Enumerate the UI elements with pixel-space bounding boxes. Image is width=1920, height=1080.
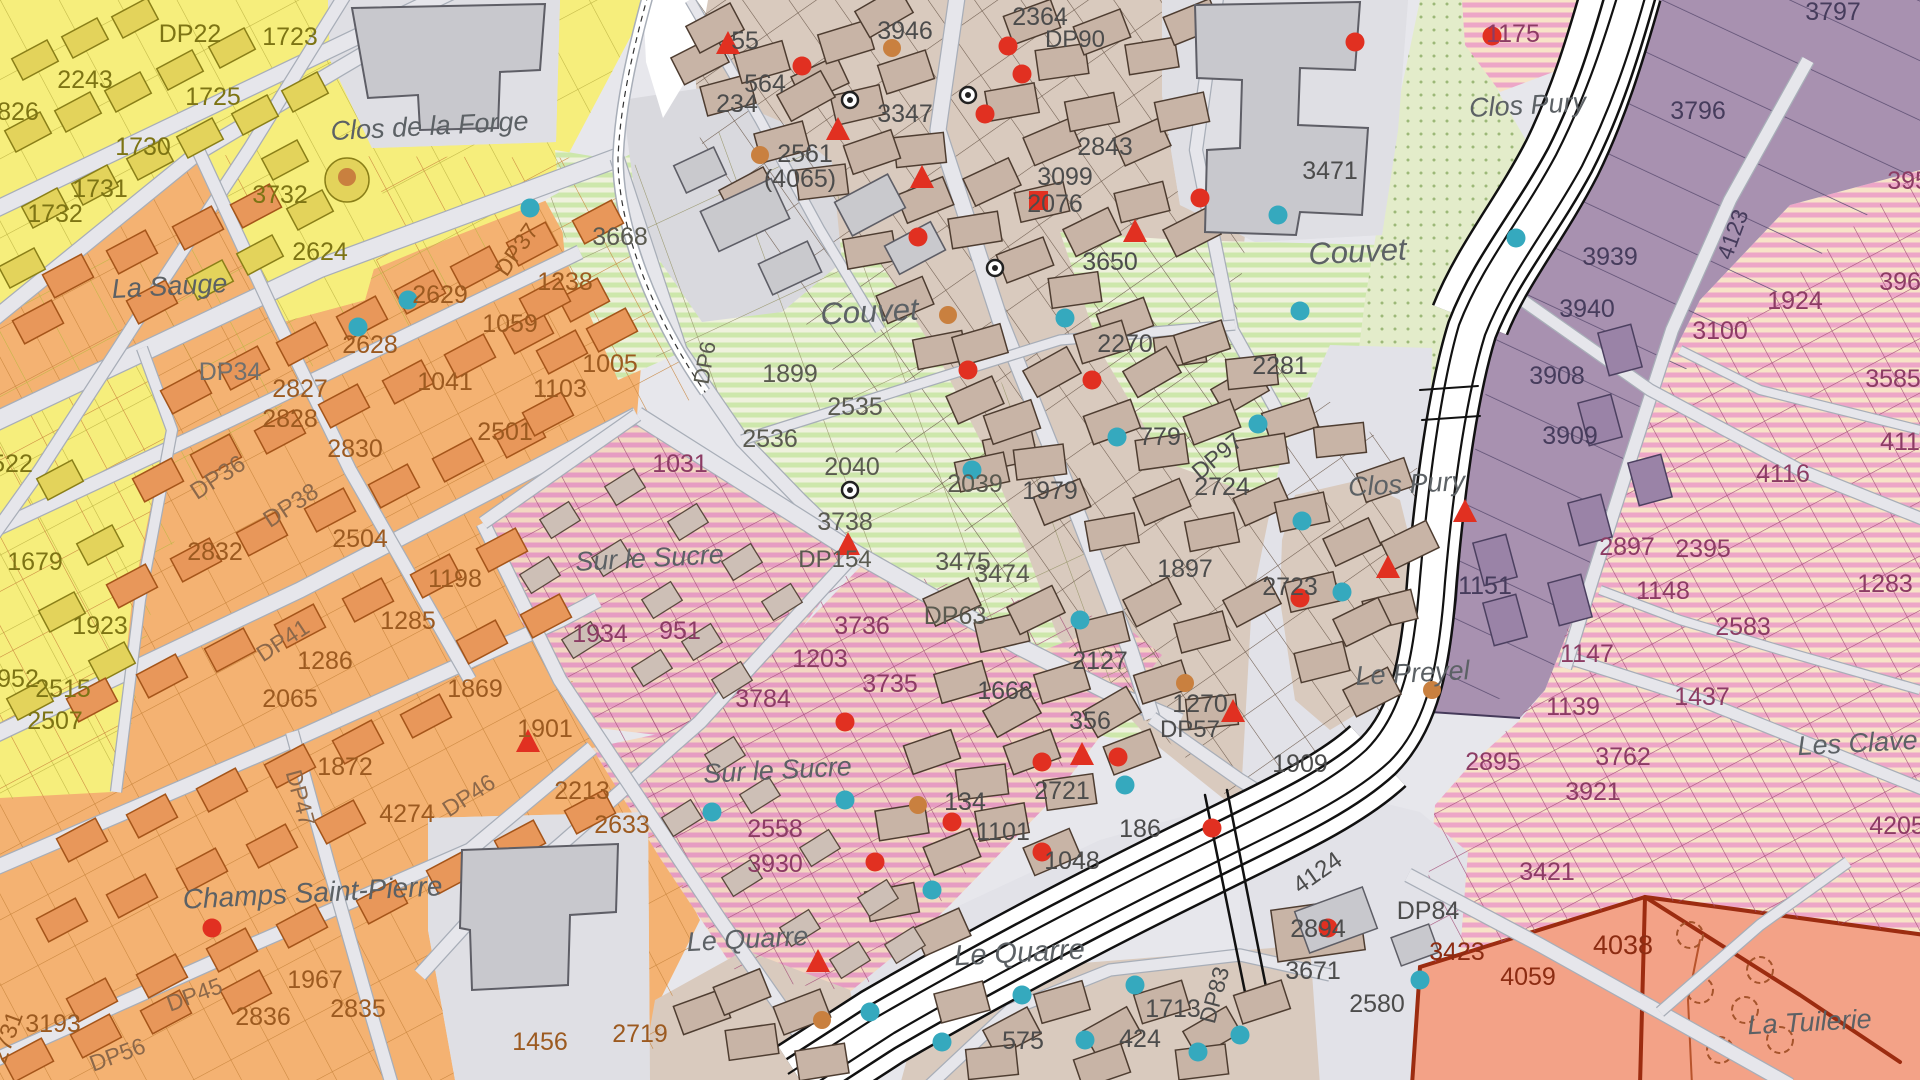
svg-text:1285: 1285: [380, 607, 436, 635]
svg-text:4116: 4116: [1756, 460, 1810, 488]
svg-text:1041: 1041: [417, 368, 473, 396]
svg-text:1151: 1151: [1458, 572, 1512, 600]
svg-text:3796: 3796: [1670, 97, 1726, 125]
svg-text:3099: 3099: [1037, 163, 1093, 191]
svg-text:1005: 1005: [582, 350, 638, 378]
svg-text:1203: 1203: [792, 645, 848, 673]
svg-text:2515: 2515: [35, 675, 91, 703]
svg-text:2535: 2535: [827, 393, 883, 421]
svg-text:575: 575: [1002, 1027, 1044, 1055]
svg-text:2629: 2629: [412, 281, 468, 309]
svg-text:134: 134: [944, 788, 986, 816]
svg-text:3784: 3784: [735, 685, 791, 713]
svg-text:2395: 2395: [1675, 535, 1731, 563]
svg-text:2127: 2127: [1072, 647, 1128, 675]
svg-text:2628: 2628: [342, 331, 398, 359]
svg-text:4274: 4274: [379, 800, 435, 828]
svg-text:DP22: DP22: [159, 20, 222, 48]
svg-text:2724: 2724: [1194, 473, 1250, 501]
svg-text:2830: 2830: [327, 435, 383, 463]
svg-text:951: 951: [659, 617, 701, 645]
svg-text:2832: 2832: [187, 538, 243, 566]
svg-text:2504: 2504: [332, 525, 388, 553]
svg-text:2827: 2827: [272, 375, 328, 403]
svg-text:234: 234: [716, 90, 758, 118]
svg-text:1909: 1909: [1272, 750, 1328, 778]
svg-text:1101: 1101: [976, 818, 1030, 846]
svg-text:826: 826: [0, 98, 39, 126]
svg-text:1723: 1723: [262, 23, 318, 51]
svg-text:1139: 1139: [1546, 693, 1600, 721]
svg-text:1732: 1732: [27, 200, 83, 228]
svg-text:La Sauge: La Sauge: [111, 268, 228, 304]
svg-text:3471: 3471: [1302, 157, 1358, 185]
svg-text:2558: 2558: [747, 815, 803, 843]
svg-text:1869: 1869: [447, 675, 503, 703]
svg-text:DP63: DP63: [924, 602, 987, 630]
svg-text:1713: 1713: [1145, 995, 1201, 1023]
svg-text:2633: 2633: [594, 811, 650, 839]
svg-text:1048: 1048: [1044, 847, 1100, 875]
svg-text:1924: 1924: [1767, 287, 1823, 315]
svg-text:1175: 1175: [1486, 20, 1540, 48]
svg-text:1059: 1059: [482, 310, 538, 338]
svg-text:1899: 1899: [762, 360, 818, 388]
svg-text:1725: 1725: [185, 83, 241, 111]
svg-text:2721: 2721: [1034, 777, 1090, 805]
svg-text:2039: 2039: [947, 470, 1003, 498]
svg-text:2897: 2897: [1599, 533, 1655, 561]
svg-text:1923: 1923: [72, 612, 128, 640]
svg-text:3474: 3474: [974, 560, 1030, 588]
svg-text:2561: 2561: [777, 140, 833, 168]
svg-text:2836: 2836: [235, 1003, 291, 1031]
svg-text:1437: 1437: [1674, 683, 1730, 711]
svg-text:1668: 1668: [977, 677, 1033, 705]
svg-text:3797: 3797: [1805, 0, 1861, 26]
svg-text:2281: 2281: [1252, 352, 1308, 380]
svg-text:2843: 2843: [1077, 133, 1133, 161]
svg-text:3738: 3738: [817, 508, 873, 536]
svg-text:3921: 3921: [1565, 778, 1621, 806]
svg-text:1872: 1872: [317, 753, 373, 781]
svg-text:Le Quarre: Le Quarre: [686, 921, 809, 957]
svg-text:3671: 3671: [1285, 957, 1341, 985]
svg-text:Le Preyel: Le Preyel: [1355, 655, 1471, 691]
svg-text:3960: 3960: [1879, 268, 1920, 296]
svg-text:2624: 2624: [292, 238, 348, 266]
svg-text:2243: 2243: [57, 66, 113, 94]
svg-text:3908: 3908: [1529, 362, 1585, 390]
svg-text:1286: 1286: [297, 647, 353, 675]
svg-text:1897: 1897: [1157, 555, 1213, 583]
svg-text:952: 952: [0, 665, 39, 693]
svg-text:1148: 1148: [1636, 577, 1690, 605]
svg-text:3732: 3732: [252, 181, 308, 209]
svg-text:1147: 1147: [1560, 640, 1614, 668]
svg-text:(4065): (4065): [764, 165, 836, 193]
svg-text:3959: 3959: [1887, 167, 1920, 195]
svg-text:779: 779: [1139, 423, 1181, 451]
svg-text:1730: 1730: [115, 133, 171, 161]
svg-text:DP90: DP90: [1045, 26, 1105, 53]
svg-text:3946: 3946: [877, 17, 933, 45]
svg-text:Couvet: Couvet: [819, 291, 920, 331]
svg-text:4117: 4117: [1880, 428, 1920, 456]
svg-text:2076: 2076: [1027, 190, 1083, 218]
svg-text:186: 186: [1119, 815, 1161, 843]
svg-text:2040: 2040: [824, 453, 880, 481]
svg-text:2213: 2213: [554, 777, 610, 805]
svg-text:3347: 3347: [877, 100, 933, 128]
svg-text:3100: 3100: [1692, 317, 1748, 345]
svg-text:2894: 2894: [1290, 915, 1346, 943]
svg-text:2270: 2270: [1097, 330, 1153, 358]
svg-text:2835: 2835: [330, 995, 386, 1023]
svg-text:3650: 3650: [1082, 248, 1138, 276]
svg-text:4059: 4059: [1500, 963, 1556, 991]
svg-text:3421: 3421: [1519, 858, 1575, 886]
svg-text:2895: 2895: [1465, 748, 1521, 776]
svg-text:1901: 1901: [517, 715, 573, 743]
svg-text:1456: 1456: [512, 1028, 568, 1056]
svg-text:2501: 2501: [477, 418, 533, 446]
svg-text:DP34: DP34: [199, 358, 262, 386]
svg-text:3585: 3585: [1865, 365, 1920, 393]
svg-text:DP84: DP84: [1397, 897, 1460, 925]
svg-text:2536: 2536: [742, 425, 798, 453]
svg-text:1283: 1283: [1857, 570, 1913, 598]
svg-text:3668: 3668: [592, 223, 648, 251]
svg-text:3940: 3940: [1559, 295, 1615, 323]
svg-text:1270: 1270: [1172, 690, 1228, 718]
svg-text:3930: 3930: [747, 850, 803, 878]
svg-text:2719: 2719: [612, 1020, 668, 1048]
svg-text:1731: 1731: [72, 175, 128, 203]
svg-text:1238: 1238: [537, 268, 593, 296]
svg-text:1031: 1031: [652, 450, 708, 478]
svg-text:1967: 1967: [287, 966, 343, 994]
svg-text:3193: 3193: [25, 1010, 81, 1038]
svg-text:DP154: DP154: [798, 546, 871, 573]
svg-text:1679: 1679: [7, 548, 63, 576]
svg-text:Le Quarre: Le Quarre: [953, 934, 1085, 973]
svg-text:2583: 2583: [1715, 613, 1771, 641]
svg-text:2723: 2723: [1262, 573, 1318, 601]
svg-text:4038: 4038: [1593, 930, 1653, 960]
svg-text:1979: 1979: [1022, 477, 1078, 505]
svg-text:1934: 1934: [572, 620, 628, 648]
svg-text:Les Clave: Les Clave: [1797, 725, 1918, 761]
svg-text:Clos Pury: Clos Pury: [1468, 87, 1588, 123]
svg-text:3909: 3909: [1542, 422, 1598, 450]
svg-text:3735: 3735: [862, 670, 918, 698]
svg-text:2065: 2065: [262, 685, 318, 713]
svg-text:2507: 2507: [27, 707, 83, 735]
svg-text:3762: 3762: [1595, 743, 1651, 771]
svg-text:55: 55: [731, 27, 759, 55]
svg-text:Clos Pury: Clos Pury: [1347, 466, 1467, 502]
svg-text:1198: 1198: [428, 565, 482, 593]
svg-text:356: 356: [1069, 707, 1111, 735]
svg-text:3423: 3423: [1429, 938, 1485, 966]
svg-text:1103: 1103: [533, 375, 587, 403]
svg-text:2580: 2580: [1349, 990, 1405, 1018]
svg-text:522: 522: [0, 450, 33, 478]
svg-text:DP57: DP57: [1160, 716, 1220, 743]
svg-text:3939: 3939: [1582, 243, 1638, 271]
svg-text:3736: 3736: [834, 612, 890, 640]
svg-text:Couvet: Couvet: [1307, 231, 1408, 271]
svg-text:424: 424: [1119, 1025, 1161, 1053]
svg-text:2828: 2828: [262, 405, 318, 433]
svg-text:4205: 4205: [1869, 812, 1920, 840]
